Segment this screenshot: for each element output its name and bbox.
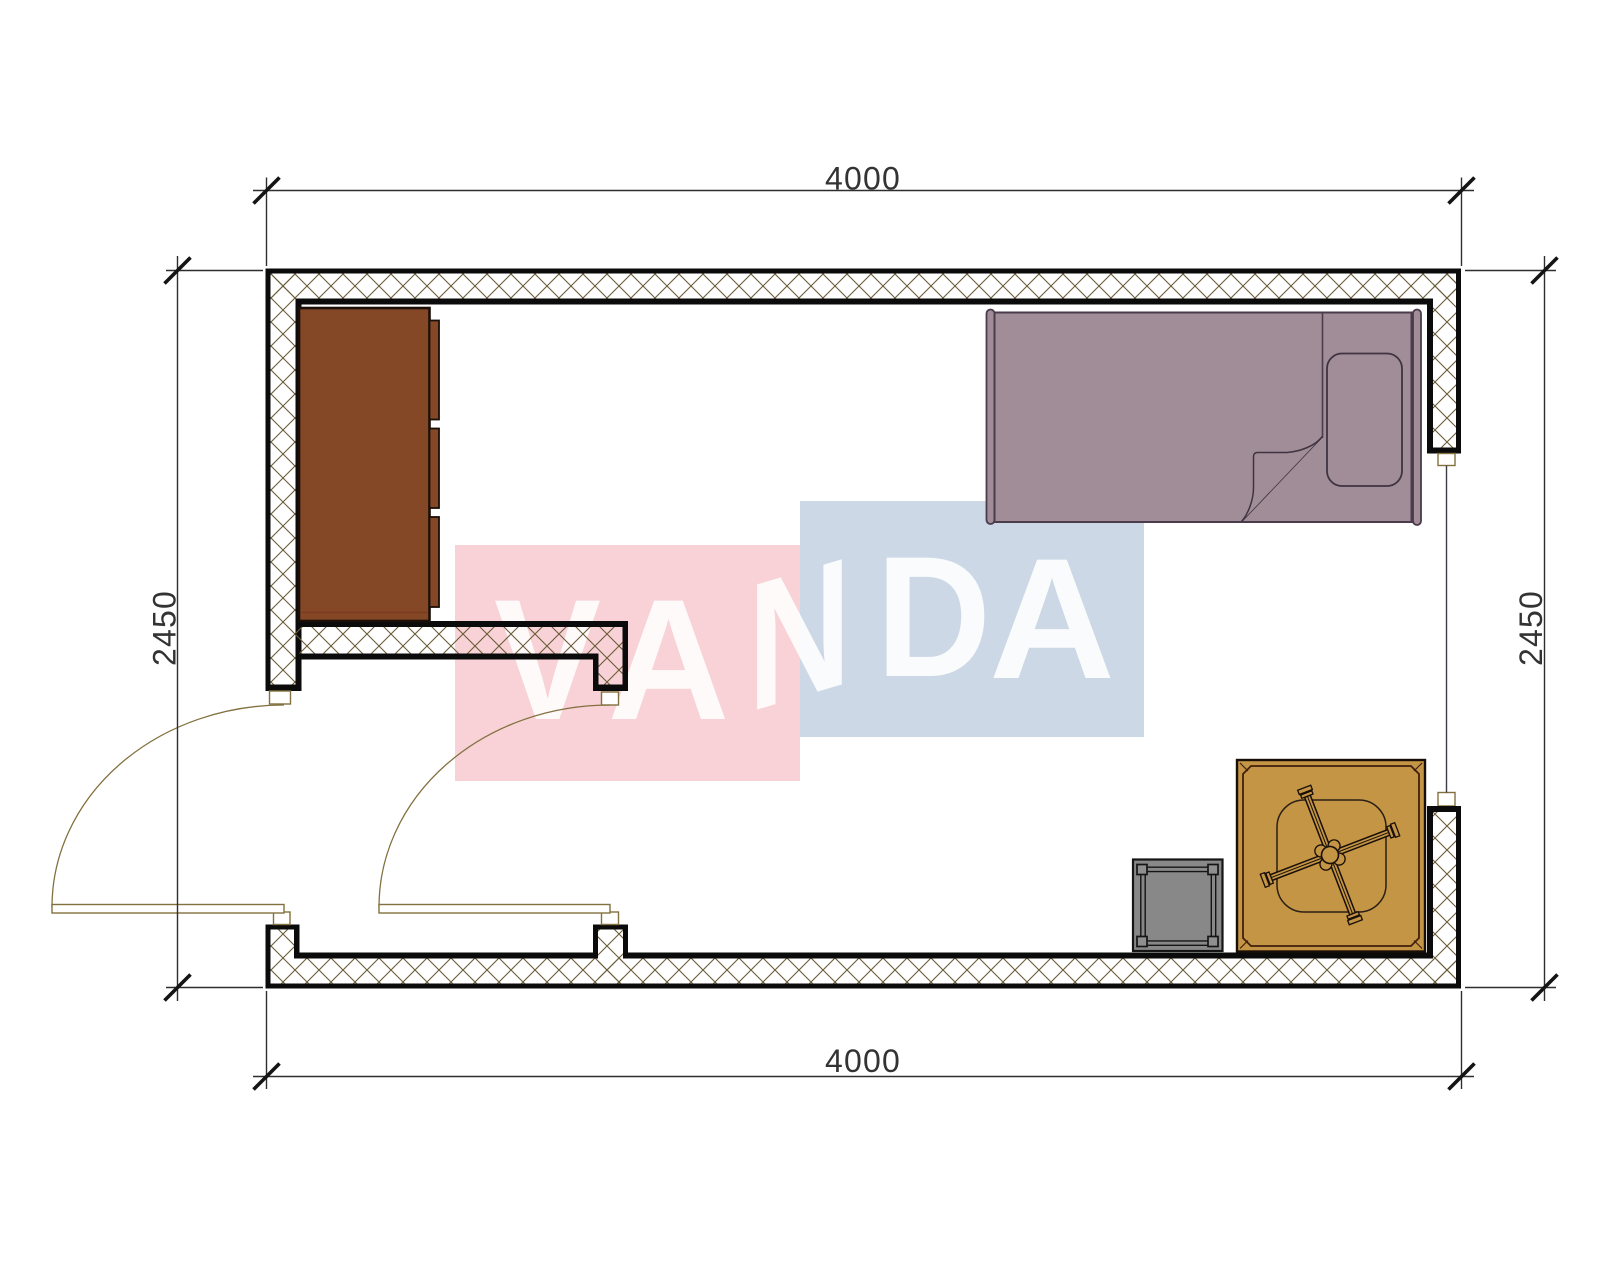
svg-text:V: V xyxy=(494,564,601,756)
svg-text:4000: 4000 xyxy=(825,161,901,197)
svg-text:2450: 2450 xyxy=(147,590,183,666)
svg-text:N: N xyxy=(748,518,852,751)
svg-text:D: D xyxy=(876,521,991,713)
svg-text:2450: 2450 xyxy=(1513,590,1549,666)
svg-text:A: A xyxy=(989,523,1115,715)
svg-text:4000: 4000 xyxy=(825,1043,901,1079)
